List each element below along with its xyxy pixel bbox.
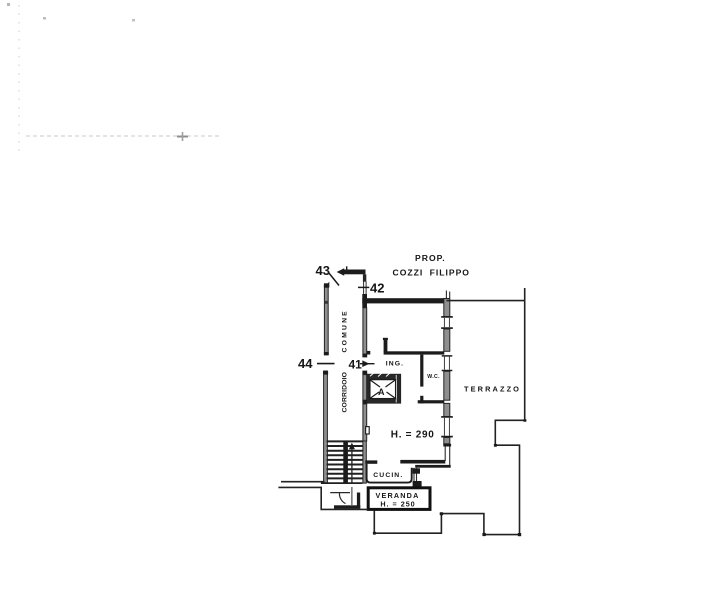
svg-text:ING.: ING.	[386, 360, 404, 367]
svg-text:42: 42	[370, 281, 384, 296]
svg-text:COZZI FILIPPO: COZZI FILIPPO	[393, 268, 471, 278]
svg-text:VERANDA: VERANDA	[376, 491, 420, 500]
svg-text:44: 44	[298, 356, 313, 371]
svg-text:TERRAZZO: TERRAZZO	[464, 385, 521, 394]
svg-text:CORRIDOIO: CORRIDOIO	[342, 372, 349, 413]
svg-text:43: 43	[316, 263, 330, 278]
svg-text:W.C.: W.C.	[427, 374, 440, 380]
svg-text:H. = 250: H. = 250	[380, 500, 415, 509]
svg-text:A: A	[378, 387, 385, 397]
svg-text:H. = 290: H. = 290	[391, 430, 435, 441]
svg-text:CUCIN.: CUCIN.	[373, 472, 403, 479]
svg-text:COMUNE: COMUNE	[342, 309, 349, 352]
svg-text:PROP.: PROP.	[415, 253, 446, 263]
